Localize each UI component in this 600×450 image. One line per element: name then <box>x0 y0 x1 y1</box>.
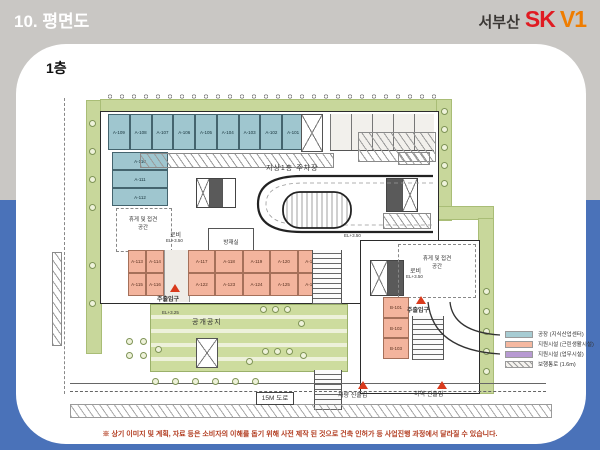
main-entrance-label-right: 주출입구 <box>407 305 429 314</box>
unit-label: A-119 <box>251 259 263 264</box>
factory-unit: A-106 <box>173 114 195 150</box>
grid-bubble-row <box>104 92 440 101</box>
factory-unit: A-107 <box>152 114 174 150</box>
level-marker-plaza: EL+3.25 <box>162 310 179 315</box>
legend-row: 공장 (지식산업센터) <box>505 329 594 339</box>
tree-icon <box>286 348 293 355</box>
legend-swatch-retail <box>505 341 533 348</box>
legend-swatch-factory <box>505 331 533 338</box>
elevator-core-center <box>196 178 236 208</box>
support-unit: A-117 <box>188 250 215 273</box>
tree-icon <box>89 300 96 307</box>
rest-area-label-right-line2: 공간 <box>414 262 460 270</box>
legend: 공장 (지식산업센터) 지원시설 (근린생활시설) 지원시설 (업무시설) 보행… <box>505 329 594 369</box>
unit-label: A-123 <box>223 282 235 287</box>
support-units-b: B-101B-102B-103 <box>383 297 409 359</box>
unit-label: A-122 <box>196 282 208 287</box>
unit-label: A-106 <box>178 130 190 135</box>
support-unit: A-116 <box>146 273 164 296</box>
legend-swatch-office <box>505 351 533 358</box>
tree-icon <box>172 378 179 385</box>
tree-icon <box>284 306 291 313</box>
lobby-level-left: EL+3.50 <box>166 238 183 243</box>
parking-lot-label: 지상1층 주차장 <box>266 163 318 173</box>
stair-icon <box>197 179 210 207</box>
vehicle-access-marker-icon <box>358 381 368 389</box>
support-unit: B-101 <box>383 297 409 318</box>
support-unit: A-118 <box>215 250 242 273</box>
floor-label: 1층 <box>46 58 67 78</box>
mech-room-label: 방재실 <box>223 238 238 246</box>
support-unit: A-124 <box>243 273 270 296</box>
tree-icon <box>441 144 448 151</box>
vehicle-access-label: 차량 진출입 <box>338 390 367 399</box>
unit-label: A-115 <box>131 282 143 287</box>
sidewalk-hatch <box>70 404 552 418</box>
tree-icon <box>272 306 279 313</box>
unit-label: A-124 <box>250 282 262 287</box>
tree-icon <box>260 306 267 313</box>
support-unit: B-103 <box>383 338 409 359</box>
tree-icon <box>483 328 490 335</box>
stair-icon <box>402 179 418 211</box>
annex-stair <box>412 316 444 360</box>
tree-icon <box>298 320 305 327</box>
tree-icon <box>89 148 96 155</box>
support-unit: A-115 <box>128 273 146 296</box>
unit-label: A-107 <box>156 130 168 135</box>
legend-row: 보행통로 (1.6m) <box>505 359 594 369</box>
floor-plan: A-109A-108A-107A-106A-105A-104A-103A-102… <box>0 0 600 450</box>
side-road-hatch <box>52 252 62 346</box>
tree-icon <box>89 262 96 269</box>
tree-icon <box>89 120 96 127</box>
unit-label: A-103 <box>244 130 256 135</box>
unit-row-top: A-109A-108A-107A-106A-105A-104A-103A-102… <box>108 114 304 150</box>
unit-label: B-103 <box>390 346 402 351</box>
canopy-structure <box>196 338 218 368</box>
stair-icon <box>371 261 387 295</box>
tree-icon <box>441 162 448 169</box>
legend-label: 지원시설 (근린생활시설) <box>538 340 594 348</box>
tree-icon <box>441 180 448 187</box>
tree-icon <box>152 378 159 385</box>
parking-stalls <box>383 213 431 229</box>
support-units-left: A-113A-114A-115A-116 <box>128 250 164 296</box>
unit-label: A-111 <box>134 177 145 182</box>
support-units-right: A-117A-118A-119A-120A-121A-122A-123A-124… <box>188 250 325 296</box>
elevator-cell <box>210 179 222 207</box>
unit-label: A-114 <box>149 259 161 264</box>
legend-row: 지원시설 (근린생활시설) <box>505 339 594 349</box>
loading-access-marker-icon <box>437 381 447 389</box>
factory-unit: A-111 <box>112 170 168 188</box>
unit-label: B-101 <box>390 305 402 310</box>
tree-icon <box>89 176 96 183</box>
unit-label: A-105 <box>200 130 212 135</box>
tree-icon <box>192 378 199 385</box>
unit-label: B-102 <box>390 326 402 331</box>
unit-label: A-116 <box>149 282 161 287</box>
tree-icon <box>126 352 133 359</box>
road-label: 15M 도로 <box>256 392 294 405</box>
support-unit: A-123 <box>215 273 242 296</box>
road-centerline <box>70 391 546 392</box>
tree-icon <box>483 368 490 375</box>
factory-unit: A-105 <box>195 114 217 150</box>
tree-icon <box>441 108 448 115</box>
legend-swatch-walkway <box>505 361 533 368</box>
support-unit: A-122 <box>188 273 215 296</box>
slide: 10. 평면도 서부산 SK V1 1층 A-109A-108A-107A-10… <box>0 0 600 450</box>
stair-core <box>301 114 323 152</box>
support-unit: A-120 <box>270 250 297 273</box>
parking-stalls <box>398 152 430 165</box>
tree-icon <box>232 378 239 385</box>
legend-label: 보행통로 (1.6m) <box>538 360 576 368</box>
factory-unit: A-104 <box>217 114 239 150</box>
side-road-centerline <box>64 98 65 394</box>
legend-label: 공장 (지식산업센터) <box>538 330 584 338</box>
rest-area-label-left-line2: 공간 <box>120 223 166 231</box>
unit-label: A-117 <box>196 259 208 264</box>
open-space-label: 공개공지 <box>192 317 222 327</box>
entrance-marker-icon <box>416 296 426 304</box>
support-unit: A-119 <box>243 250 270 273</box>
legend-row: 지원시설 (업무시설) <box>505 349 594 359</box>
loading-access-label: 하역 진출입 <box>414 389 443 398</box>
unit-label: A-112 <box>134 195 146 200</box>
factory-unit: A-112 <box>112 188 168 206</box>
support-unit: B-102 <box>383 318 409 339</box>
entrance-marker-icon <box>170 284 180 292</box>
lobby-level-right: EL+3.50 <box>406 274 423 279</box>
level-marker-center: EL+3.50 <box>344 233 361 238</box>
disclaimer-text: ※ 상기 이미지 및 계획, 자료 등은 소비자의 이해를 돕기 위해 사전 제… <box>103 429 498 439</box>
unit-label: A-101 <box>287 130 299 135</box>
tree-icon <box>483 288 490 295</box>
unit-label: A-120 <box>278 259 290 264</box>
tree-icon <box>140 352 147 359</box>
legend-label: 지원시설 (업무시설) <box>538 350 584 358</box>
elevator-core-right <box>386 178 418 212</box>
tree-icon <box>126 338 133 345</box>
tree-icon <box>246 358 253 365</box>
support-unit: A-125 <box>270 273 297 296</box>
unit-label: A-109 <box>113 130 125 135</box>
unit-label: A-113 <box>131 259 143 264</box>
tree-icon <box>155 346 162 353</box>
rest-area-label-right-line1: 휴게 및 접견 <box>414 254 460 262</box>
tree-icon <box>483 308 490 315</box>
factory-unit: A-103 <box>239 114 261 150</box>
main-entrance-label-left: 주출입구 <box>157 294 179 303</box>
factory-unit: A-109 <box>108 114 130 150</box>
interior-stair <box>312 250 342 304</box>
tree-icon <box>274 348 281 355</box>
support-unit: A-113 <box>128 250 146 273</box>
tree-icon <box>252 378 259 385</box>
rest-area-label-left-line1: 휴게 및 접견 <box>120 215 166 223</box>
shaft-cell <box>222 179 235 207</box>
factory-unit: A-108 <box>130 114 152 150</box>
tree-icon <box>483 348 490 355</box>
unit-label: A-108 <box>135 130 147 135</box>
factory-unit: A-102 <box>260 114 282 150</box>
support-unit: A-114 <box>146 250 164 273</box>
unit-label: A-102 <box>265 130 277 135</box>
unit-label: A-125 <box>278 282 290 287</box>
tree-icon <box>300 352 307 359</box>
tree-icon <box>262 348 269 355</box>
elevator-cell <box>387 179 402 211</box>
road-edge-line <box>70 383 546 384</box>
unit-label: A-104 <box>222 130 234 135</box>
tree-icon <box>212 378 219 385</box>
unit-label: A-118 <box>223 259 235 264</box>
tree-icon <box>89 204 96 211</box>
tree-icon <box>140 338 147 345</box>
tree-icon <box>441 126 448 133</box>
